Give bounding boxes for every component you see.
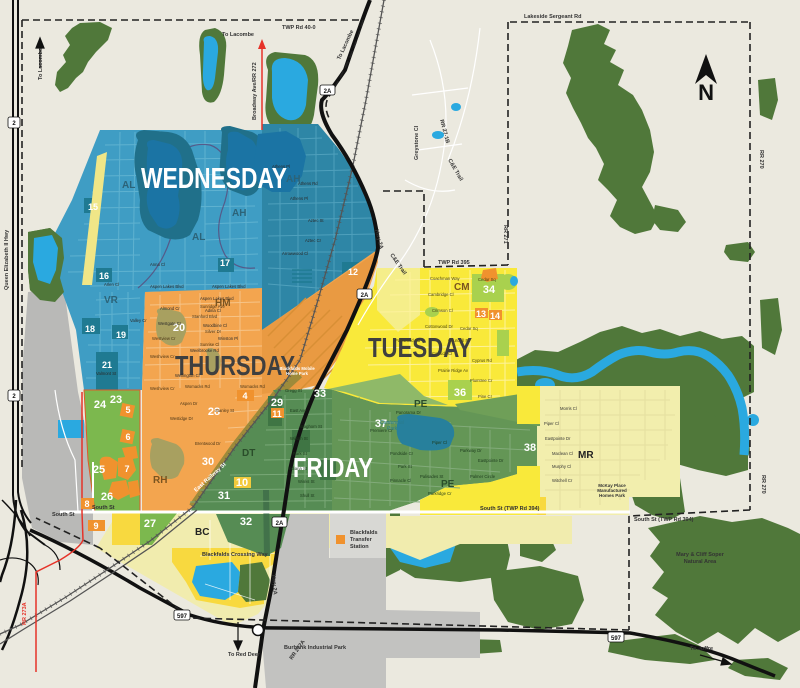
svg-text:Valmont St: Valmont St — [96, 371, 117, 376]
svg-text:CM: CM — [454, 282, 470, 293]
svg-text:Crimson Cl: Crimson Cl — [432, 308, 453, 313]
svg-text:34: 34 — [483, 284, 496, 296]
svg-text:7: 7 — [124, 464, 129, 474]
svg-text:Piper Cl: Piper Cl — [432, 440, 447, 445]
svg-text:Waghorn St: Waghorn St — [300, 424, 323, 429]
svg-text:Cassidy Cl: Cassidy Cl — [432, 351, 452, 356]
svg-text:PE: PE — [441, 479, 455, 490]
svg-text:Aspen Dr: Aspen Dr — [180, 401, 198, 406]
svg-text:Witchell Cr: Witchell Cr — [552, 478, 573, 483]
svg-text:Parkridge Cr: Parkridge Cr — [428, 491, 452, 496]
svg-text:South St: South St — [52, 512, 75, 518]
svg-text:TWP Rd 40-0: TWP Rd 40-0 — [282, 25, 316, 31]
svg-text:Westidge Dr: Westidge Dr — [170, 416, 194, 421]
svg-text:Womacks Rd: Womacks Rd — [240, 384, 265, 389]
svg-text:Cyprus Rd: Cyprus Rd — [472, 358, 492, 363]
svg-text:RH: RH — [153, 475, 167, 486]
svg-text:Stanley St: Stanley St — [215, 408, 235, 413]
svg-text:TWP Rd 395: TWP Rd 395 — [438, 260, 470, 266]
svg-text:TUESDAY: TUESDAY — [368, 332, 472, 363]
svg-text:Queen Elizabeth II Hwy: Queen Elizabeth II Hwy — [4, 229, 10, 290]
svg-text:Brentwood Dr: Brentwood Dr — [195, 441, 221, 446]
svg-text:Woodbine Cl: Woodbine Cl — [203, 323, 227, 328]
svg-text:19: 19 — [116, 330, 126, 340]
svg-text:Eastpointe Dr: Eastpointe Dr — [545, 436, 571, 441]
svg-text:Aspen Lakes Blvd: Aspen Lakes Blvd — [212, 284, 246, 289]
svg-text:24: 24 — [94, 399, 107, 411]
svg-text:To Joffre: To Joffre — [690, 646, 713, 652]
svg-text:DT: DT — [242, 448, 255, 459]
svg-text:Arrowwood Cl: Arrowwood Cl — [282, 251, 308, 256]
svg-text:Mary & Cliff Soper: Mary & Cliff Soper — [676, 552, 725, 558]
svg-text:27: 27 — [144, 518, 156, 530]
svg-text:Morris Cl: Morris Cl — [560, 406, 577, 411]
svg-text:AL: AL — [192, 232, 205, 243]
svg-text:21: 21 — [102, 360, 112, 370]
svg-text:14: 14 — [490, 311, 500, 321]
svg-text:Athens Rd: Athens Rd — [298, 181, 318, 186]
svg-text:Wellington Cl: Wellington Cl — [175, 373, 200, 378]
svg-text:18: 18 — [85, 324, 95, 334]
svg-text:RR 270: RR 270 — [758, 150, 764, 169]
svg-text:Stanford Blvd: Stanford Blvd — [192, 314, 218, 319]
svg-text:2A: 2A — [276, 521, 284, 527]
svg-text:30: 30 — [202, 456, 214, 468]
svg-text:RR 271: RR 271 — [502, 225, 508, 244]
svg-text:Athens Pl: Athens Pl — [290, 196, 308, 201]
svg-text:RR 270: RR 270 — [760, 475, 766, 494]
svg-text:597: 597 — [611, 636, 622, 642]
svg-text:Murphy Cl: Murphy Cl — [552, 464, 571, 469]
svg-text:Aztec St: Aztec St — [308, 218, 324, 223]
svg-text:Piper Cl: Piper Cl — [544, 421, 559, 426]
svg-text:Valley Cr: Valley Cr — [130, 318, 147, 323]
svg-text:597: 597 — [177, 614, 188, 620]
svg-text:Aspen Lakes Blvd: Aspen Lakes Blvd — [200, 296, 234, 301]
svg-text:Wilson St: Wilson St — [290, 436, 309, 441]
svg-text:6: 6 — [125, 432, 130, 442]
svg-text:AL: AL — [122, 180, 135, 191]
svg-text:Park St: Park St — [293, 451, 308, 456]
svg-text:8: 8 — [84, 499, 89, 509]
svg-text:36: 36 — [454, 387, 466, 399]
svg-text:Weshview Cr: Weshview Cr — [150, 386, 175, 391]
svg-text:2A: 2A — [361, 293, 369, 299]
svg-text:Westgate Cr: Westgate Cr — [158, 321, 182, 326]
svg-text:32: 32 — [240, 516, 252, 528]
svg-text:Park St: Park St — [398, 464, 413, 469]
svg-text:Winks St: Winks St — [298, 479, 315, 484]
svg-text:16: 16 — [99, 271, 109, 281]
svg-text:To Lacombe: To Lacombe — [38, 48, 44, 80]
svg-text:2A: 2A — [324, 89, 332, 95]
svg-text:Premiere Cr: Premiere Cr — [370, 428, 393, 433]
svg-text:23: 23 — [110, 394, 122, 406]
svg-text:Parkwood Rd: Parkwood Rd — [395, 338, 421, 343]
svg-text:Churchill Pl: Churchill Pl — [448, 338, 469, 343]
svg-text:South St (TWP Rd 394): South St (TWP Rd 394) — [480, 506, 540, 512]
svg-text:Palisades St: Palisades St — [420, 474, 444, 479]
svg-text:Home Park: Home Park — [286, 371, 309, 376]
svg-text:N: N — [698, 80, 714, 105]
svg-text:VR: VR — [104, 295, 119, 306]
svg-text:To Red Deer: To Red Deer — [228, 652, 261, 658]
svg-text:38: 38 — [524, 442, 536, 454]
svg-text:Lakeside Sergeant Rd: Lakeside Sergeant Rd — [524, 14, 581, 20]
svg-text:BC: BC — [195, 527, 209, 538]
svg-text:Sunridge Ave: Sunridge Ave — [200, 304, 226, 309]
svg-text:31: 31 — [218, 490, 230, 502]
svg-text:9: 9 — [93, 521, 98, 531]
svg-text:4: 4 — [242, 391, 247, 401]
svg-text:Pine Cr: Pine Cr — [478, 394, 493, 399]
svg-text:MR: MR — [578, 450, 594, 461]
svg-text:Almond Cr: Almond Cr — [160, 306, 180, 311]
svg-text:AH: AH — [232, 208, 246, 219]
svg-text:Panorama Dr: Panorama Dr — [396, 410, 422, 415]
svg-text:Sunrise Cl: Sunrise Cl — [200, 342, 219, 347]
svg-text:Station: Station — [350, 544, 369, 550]
svg-text:11: 11 — [272, 409, 282, 419]
svg-text:Athens Pl: Athens Pl — [272, 164, 290, 169]
svg-text:Cedar Sq: Cedar Sq — [460, 326, 478, 331]
svg-text:Palmer Circle: Palmer Circle — [470, 474, 496, 479]
svg-text:Arlen Cl: Arlen Cl — [104, 282, 119, 287]
svg-text:25: 25 — [93, 464, 105, 476]
svg-text:Plumtree Cr: Plumtree Cr — [470, 378, 493, 383]
svg-text:Broadway Ave/RR 272: Broadway Ave/RR 272 — [252, 62, 258, 120]
svg-text:PE: PE — [414, 399, 428, 410]
svg-text:Pondside Cr: Pondside Cr — [390, 451, 414, 456]
svg-text:29: 29 — [271, 397, 283, 409]
svg-text:Blackfalds Crossing Way: Blackfalds Crossing Way — [202, 552, 268, 558]
svg-text:Greystone Cl: Greystone Cl — [414, 125, 420, 160]
svg-text:South St (TWP Rd 394): South St (TWP Rd 394) — [634, 517, 694, 523]
svg-text:Pinnacle Cl: Pinnacle Cl — [390, 478, 411, 483]
svg-text:Prairie Ridge Av: Prairie Ridge Av — [438, 368, 469, 373]
svg-text:Transfer: Transfer — [350, 537, 373, 543]
svg-text:Cottonwood Dr: Cottonwood Dr — [425, 324, 454, 329]
svg-text:Maclean Cl: Maclean Cl — [552, 451, 573, 456]
svg-text:15: 15 — [88, 202, 98, 212]
svg-text:Blackfalds: Blackfalds — [350, 530, 378, 536]
svg-text:17: 17 — [220, 258, 230, 268]
svg-text:Eastpointe Dr: Eastpointe Dr — [478, 458, 504, 463]
svg-text:Cedar Sq: Cedar Sq — [478, 277, 496, 282]
svg-text:Winston Pl: Winston Pl — [218, 336, 238, 341]
svg-text:Westview Cr: Westview Cr — [152, 336, 176, 341]
svg-text:26: 26 — [101, 491, 113, 503]
svg-text:Parkway Dr: Parkway Dr — [460, 448, 482, 453]
svg-text:Natural Area: Natural Area — [684, 559, 717, 565]
svg-text:Weshview Cr: Weshview Cr — [150, 354, 175, 359]
svg-text:Weelbrooke Rd: Weelbrooke Rd — [190, 348, 219, 353]
svg-text:Gregg St: Gregg St — [285, 388, 303, 393]
svg-text:10: 10 — [236, 477, 248, 489]
svg-text:East Ave: East Ave — [290, 408, 307, 413]
svg-text:WEDNESDAY: WEDNESDAY — [141, 163, 287, 195]
svg-text:Cambridge Cl: Cambridge Cl — [428, 292, 454, 297]
svg-text:Shull St: Shull St — [300, 493, 315, 498]
svg-text:Anna Cl: Anna Cl — [150, 262, 165, 267]
svg-text:RR 273A: RR 273A — [22, 602, 28, 625]
svg-text:Aztec Cr: Aztec Cr — [305, 238, 322, 243]
svg-text:Aspen Lakes Blvd: Aspen Lakes Blvd — [150, 284, 184, 289]
svg-text:South St: South St — [92, 505, 115, 511]
svg-text:5: 5 — [125, 405, 130, 415]
svg-text:Silver Dr: Silver Dr — [205, 329, 222, 334]
svg-text:Womacks Rd: Womacks Rd — [185, 384, 210, 389]
svg-text:Indiana St: Indiana St — [288, 466, 308, 471]
svg-text:To Lacombe: To Lacombe — [222, 32, 254, 38]
svg-text:12: 12 — [348, 267, 358, 277]
svg-text:13: 13 — [476, 309, 486, 319]
svg-text:Homes Park: Homes Park — [599, 493, 626, 498]
svg-text:Coachman Way: Coachman Way — [430, 276, 461, 281]
svg-text:33: 33 — [314, 388, 326, 400]
